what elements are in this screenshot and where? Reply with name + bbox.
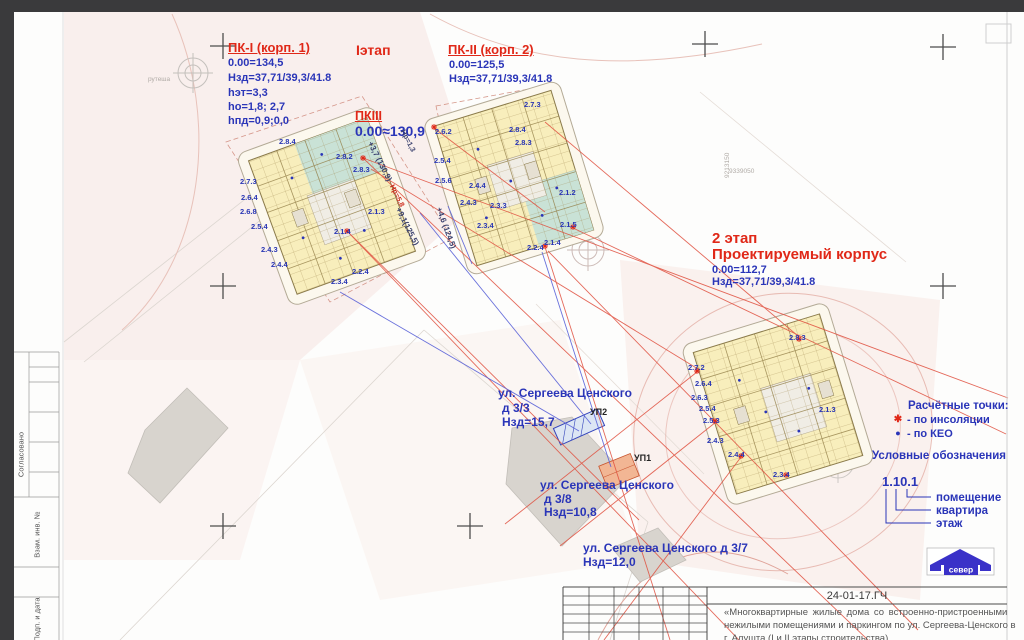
legend-item-label: - по КЕО [907, 428, 953, 440]
pk2-line: Нзд=37,71/39,3/41.8 [449, 72, 552, 86]
pk1-line: hпд=0,9;0,0 [228, 114, 289, 128]
sheet-desc-line: г. Алушта (I и II этапы строительства) [724, 632, 888, 640]
symbols-code: 1.10.1 [882, 474, 918, 489]
stage1-label: Iэтап [356, 42, 391, 58]
street-height-3: Нзд=12,0 [583, 555, 636, 569]
pk1-title: ПК-I (корп. 1) [228, 40, 310, 55]
code-label-flat: квартира [936, 505, 988, 518]
site-plan-sheet: север ПК-I (корп. 1) 0.00=134,5 Нзд=37,7… [0, 0, 1024, 640]
stage2-title-1: 2 этап [712, 230, 757, 247]
symbols-title: Условные обозначения [872, 450, 1006, 462]
legend-item-label: - по инсоляции [907, 414, 990, 426]
pk2-title: ПК-II (корп. 2) [448, 42, 534, 57]
legend-item-insolation: ✱ - по инсоляции [893, 414, 990, 426]
stage2-line: Нзд=37,71/39,3/41.8 [712, 275, 815, 289]
sidebar-label-date: Подп. и дата [33, 580, 42, 640]
insolation-star-icon: ✱ [893, 414, 903, 426]
street-label-1: ул. Сергеева Ценского [498, 386, 632, 400]
sheet-desc-line: «Многоквартирные жилые дома со встроенно… [724, 606, 1007, 619]
pk1-line: ho=1,8; 2,7 [228, 100, 285, 114]
code-label-floor: этаж [936, 518, 962, 531]
street-label-2: ул. Сергеева Ценского [540, 478, 674, 492]
screen-edge-top [0, 0, 1024, 12]
street-num-2: д 3/8 [544, 492, 572, 506]
sheet-code: 24-01-17.ГЧ [709, 590, 1005, 602]
pk2-line: 0.00=125,5 [449, 58, 504, 72]
pk3-value: 0.00≈130,9 [355, 123, 425, 139]
legend-item-keo: ● - по КЕО [893, 428, 953, 440]
pk1-line: Нзд=37,71/39,3/41.8 [228, 71, 331, 85]
pk1-line: hэт=3,3 [228, 86, 268, 100]
street-height-1: Нзд=15,7 [502, 415, 555, 429]
sidebar-label-inv: Взам. инв. № [33, 495, 42, 575]
pk1-line: 0.00=134,5 [228, 56, 283, 70]
street-num-1: д 3/3 [502, 401, 530, 415]
keo-dot-icon: ● [893, 428, 903, 440]
legend-title: Расчётные точки: [908, 400, 1009, 412]
street-height-2: Нзд=10,8 [544, 505, 597, 519]
sheet-desc-line: нежилыми помещениями и паркингом по ул. … [724, 619, 1016, 632]
street-label-3: ул. Сергеева Ценского д 3/7 [583, 541, 748, 555]
code-label-room: помещение [936, 492, 1001, 505]
drawing-paper [14, 12, 1024, 640]
sidebar-label-approved: Согласовано [17, 415, 26, 495]
pk3-title: ПКIII [355, 109, 382, 123]
screen-edge-left [0, 0, 14, 640]
stage2-title-2: Проектируемый корпус [712, 246, 887, 263]
